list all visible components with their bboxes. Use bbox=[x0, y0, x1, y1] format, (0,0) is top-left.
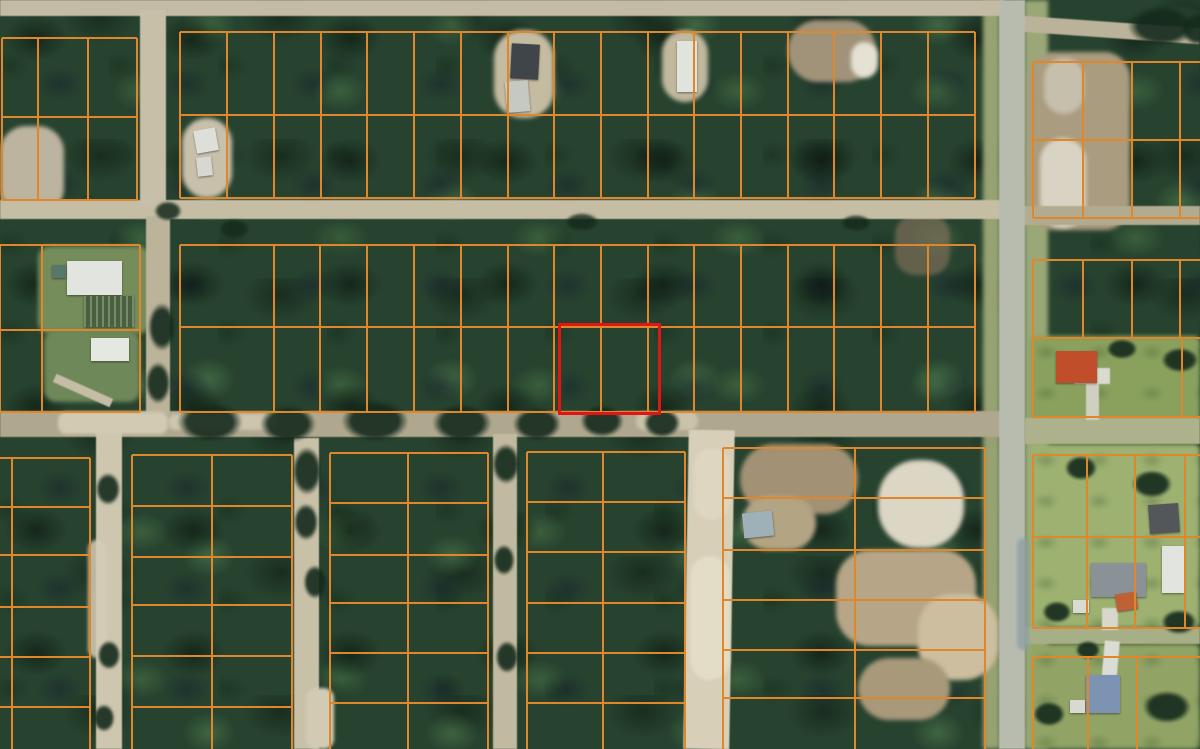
block-bottom-2-row-line bbox=[132, 454, 292, 456]
block-top-left-col-line bbox=[37, 38, 39, 200]
aerial-parcel-map bbox=[0, 0, 1200, 749]
tree-lawn-br bbox=[1028, 698, 1070, 730]
block-right-bottom-1-col-line bbox=[1184, 455, 1186, 628]
block-bottom-4-row-line bbox=[527, 451, 685, 453]
block-bottom-2-row-line bbox=[132, 706, 292, 708]
canopy-junction-left bbox=[150, 198, 186, 224]
highlighted-parcel bbox=[558, 323, 661, 415]
block-middle-col-line bbox=[833, 245, 835, 412]
block-right-house-row-line bbox=[1033, 416, 1200, 418]
block-right-top-row-line bbox=[1033, 139, 1200, 141]
sand-br-bright bbox=[878, 460, 964, 548]
block-middle-col-line bbox=[740, 245, 742, 412]
block-bottom-2-col-line bbox=[211, 455, 213, 749]
driveway-red-roof-house bbox=[1086, 383, 1099, 420]
tree-lawn-right bbox=[1102, 336, 1142, 362]
block-right-house-col-line bbox=[1181, 338, 1183, 417]
road-second-right bbox=[1024, 206, 1200, 225]
block-bottom-left-row-line bbox=[0, 457, 90, 459]
block-middle-col-line bbox=[273, 245, 275, 412]
canopy-road-bl bbox=[94, 636, 124, 674]
canopy-road-bl bbox=[90, 700, 118, 736]
block-left-middle-row-line bbox=[0, 329, 140, 331]
canopy-road2 bbox=[290, 498, 322, 546]
trees-top-right-corner bbox=[1176, 8, 1200, 50]
block-right-bottom-2-col-line bbox=[1032, 657, 1034, 749]
canopy-road-bl bbox=[92, 468, 124, 510]
block-middle-col-line bbox=[319, 245, 321, 412]
block-bottom-3-row-line bbox=[330, 652, 488, 654]
block-bottom-right-cleared-row-line bbox=[723, 697, 985, 699]
block-bottom-3-col-line bbox=[407, 453, 409, 749]
block-bottom-2-row-line bbox=[132, 655, 292, 657]
ditch-east bbox=[1017, 538, 1029, 650]
building-house-left bbox=[67, 261, 122, 295]
block-bottom-3-row-line bbox=[330, 554, 488, 556]
block-middle-col-line bbox=[553, 245, 555, 412]
block-middle-col-line bbox=[179, 245, 181, 412]
block-right-bottom-2-row-line bbox=[1033, 656, 1200, 658]
block-top-middle-row-line bbox=[180, 197, 975, 199]
block-middle-col-line bbox=[507, 245, 509, 412]
canopy-road3 bbox=[488, 438, 524, 490]
block-middle-col-line bbox=[880, 245, 882, 412]
tree-lawn-br bbox=[1038, 598, 1076, 626]
block-bottom-left-row-line bbox=[0, 506, 90, 508]
block-middle-row-line bbox=[180, 244, 975, 246]
block-middle-col-line bbox=[366, 245, 368, 412]
block-bottom-4-row-line bbox=[527, 652, 685, 654]
building-house-blue-roof bbox=[1086, 675, 1120, 713]
building-house-red-roof bbox=[1056, 351, 1097, 383]
block-top-middle-row-line bbox=[180, 114, 975, 116]
block-top-left-col-line bbox=[87, 38, 89, 200]
block-right-bottom-1-row-line bbox=[1033, 627, 1200, 629]
block-bottom-left-row-line bbox=[0, 554, 90, 556]
block-right-bottom-1-col-line bbox=[1134, 455, 1136, 628]
block-bottom-3-row-line bbox=[330, 602, 488, 604]
sand-wide-bright-2 bbox=[694, 448, 730, 520]
block-top-left-col-line bbox=[1, 38, 3, 200]
block-right-2-col-line bbox=[1082, 260, 1084, 338]
block-bottom-left-row-line bbox=[0, 606, 90, 608]
block-bottom-2-row-line bbox=[132, 604, 292, 606]
block-right-2-col-line bbox=[1179, 260, 1181, 338]
garden-rows-left bbox=[84, 296, 134, 327]
block-middle-col-line bbox=[787, 245, 789, 412]
building-shed-white-2 bbox=[1070, 700, 1085, 713]
clearing-br-5 bbox=[858, 658, 950, 720]
block-bottom-4-row-line bbox=[527, 501, 685, 503]
sand-central-left bbox=[58, 412, 168, 434]
block-right-house-row-line bbox=[1033, 337, 1200, 339]
canopy-central-road bbox=[332, 394, 418, 448]
canopy-midleft-road bbox=[144, 296, 180, 358]
block-bottom-left-row-line bbox=[0, 706, 90, 708]
canopy-road2 bbox=[300, 560, 330, 604]
building-trailer-clearing bbox=[742, 511, 774, 539]
block-bottom-4-col-line bbox=[684, 452, 686, 749]
sand-wide-bright-1 bbox=[690, 556, 730, 680]
block-top-left-row-line bbox=[2, 37, 137, 39]
block-top-middle-row-line bbox=[180, 31, 975, 33]
canopy-road-second bbox=[836, 212, 876, 234]
block-bottom-right-cleared-row-line bbox=[723, 549, 985, 551]
building-trailer-topleft bbox=[193, 127, 219, 153]
block-left-middle-row-line bbox=[0, 244, 140, 246]
canopy-road2 bbox=[288, 440, 326, 502]
block-bottom-2-col-line bbox=[131, 455, 133, 749]
block-top-left-row-line bbox=[2, 116, 137, 118]
block-bottom-4-row-line bbox=[527, 702, 685, 704]
block-bottom-left-row-line bbox=[0, 656, 90, 658]
canopy-road-second bbox=[560, 210, 604, 234]
tree-lawn-br bbox=[1060, 452, 1102, 484]
block-middle-col-line bbox=[927, 245, 929, 412]
canopy-midleft-road bbox=[142, 356, 174, 410]
block-right-2-col-line bbox=[1032, 260, 1034, 338]
block-top-left-row-line bbox=[2, 199, 137, 201]
sand-spot-top-3 bbox=[851, 42, 878, 78]
road-grass-right-1 bbox=[1025, 418, 1200, 444]
block-right-bottom-1-col-line bbox=[1086, 455, 1088, 628]
tree-lawn-br bbox=[1136, 686, 1198, 728]
canopy-road-second bbox=[214, 216, 254, 242]
block-bottom-2-row-line bbox=[132, 505, 292, 507]
block-bottom-2-row-line bbox=[132, 556, 292, 558]
block-bottom-right-cleared-row-line bbox=[723, 447, 985, 449]
sand-top-right-2 bbox=[1044, 58, 1084, 114]
block-right-bottom-1-row-line bbox=[1033, 536, 1200, 538]
tree-lawn-right bbox=[1156, 344, 1200, 376]
road-dirt-topleft bbox=[140, 10, 166, 206]
block-middle-col-line bbox=[413, 245, 415, 412]
building-trailer-bottomright bbox=[1162, 546, 1184, 593]
building-shed-topleft bbox=[196, 156, 213, 176]
block-middle-col-line bbox=[974, 245, 976, 412]
block-bottom-3-row-line bbox=[330, 502, 488, 504]
block-bottom-4-col-line bbox=[602, 452, 604, 749]
block-right-2-row-line bbox=[1033, 259, 1200, 261]
block-middle-col-line bbox=[460, 245, 462, 412]
block-bottom-right-cleared-row-line bbox=[723, 649, 985, 651]
block-right-2-col-line bbox=[1131, 260, 1133, 338]
building-house-top-dark bbox=[510, 43, 540, 79]
block-bottom-4-row-line bbox=[527, 602, 685, 604]
building-house-gray-roof bbox=[1091, 563, 1146, 597]
block-bottom-2-col-line bbox=[291, 455, 293, 749]
block-left-middle-row-line bbox=[0, 411, 140, 413]
tree-lawn-br bbox=[1156, 606, 1200, 638]
block-bottom-3-row-line bbox=[330, 452, 488, 454]
block-bottom-3-col-line bbox=[329, 453, 331, 749]
block-right-bottom-2-col-line bbox=[1136, 657, 1138, 749]
block-bottom-right-cleared-row-line bbox=[723, 497, 985, 499]
canopy-road3 bbox=[490, 540, 518, 580]
block-bottom-4-col-line bbox=[526, 452, 528, 749]
building-shed-dark bbox=[1148, 503, 1180, 534]
block-bottom-3-col-line bbox=[487, 453, 489, 749]
block-right-bottom-1-row-line bbox=[1033, 454, 1200, 456]
block-right-bottom-2-col-line bbox=[1087, 657, 1089, 749]
block-bottom-right-cleared-row-line bbox=[723, 599, 985, 601]
block-right-bottom-1-col-line bbox=[1032, 455, 1034, 628]
block-middle-col-line bbox=[693, 245, 695, 412]
building-shed-teal-left bbox=[52, 265, 66, 278]
block-top-left-col-line bbox=[136, 38, 138, 200]
block-bottom-4-row-line bbox=[527, 551, 685, 553]
block-right-house-col-line bbox=[1032, 338, 1034, 417]
canopy-road3 bbox=[492, 636, 522, 678]
block-right-top-row-line bbox=[1033, 217, 1200, 219]
block-right-top-row-line bbox=[1033, 61, 1200, 63]
block-bottom-3-row-line bbox=[330, 702, 488, 704]
building-barn-left bbox=[91, 338, 129, 361]
